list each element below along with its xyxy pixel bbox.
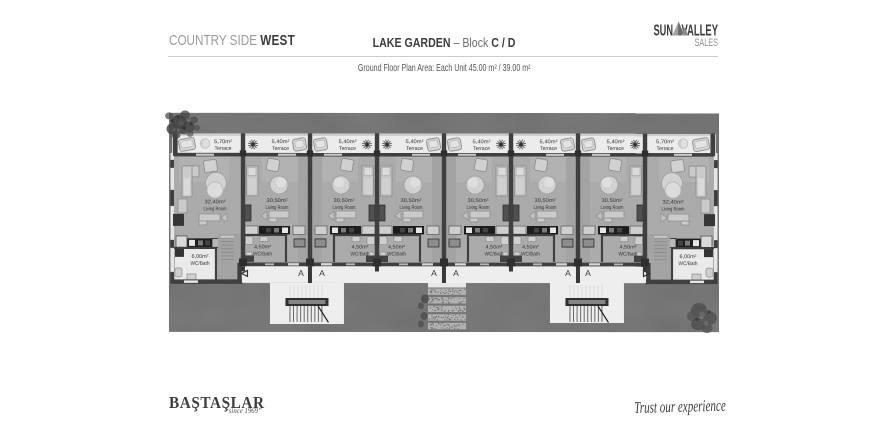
svg-text:A: A xyxy=(565,268,571,278)
svg-text:A: A xyxy=(431,268,437,278)
svg-text:A: A xyxy=(298,268,304,278)
svg-text:A: A xyxy=(453,268,459,278)
svg-text:A: A xyxy=(585,268,591,278)
svg-text:A: A xyxy=(319,268,325,278)
